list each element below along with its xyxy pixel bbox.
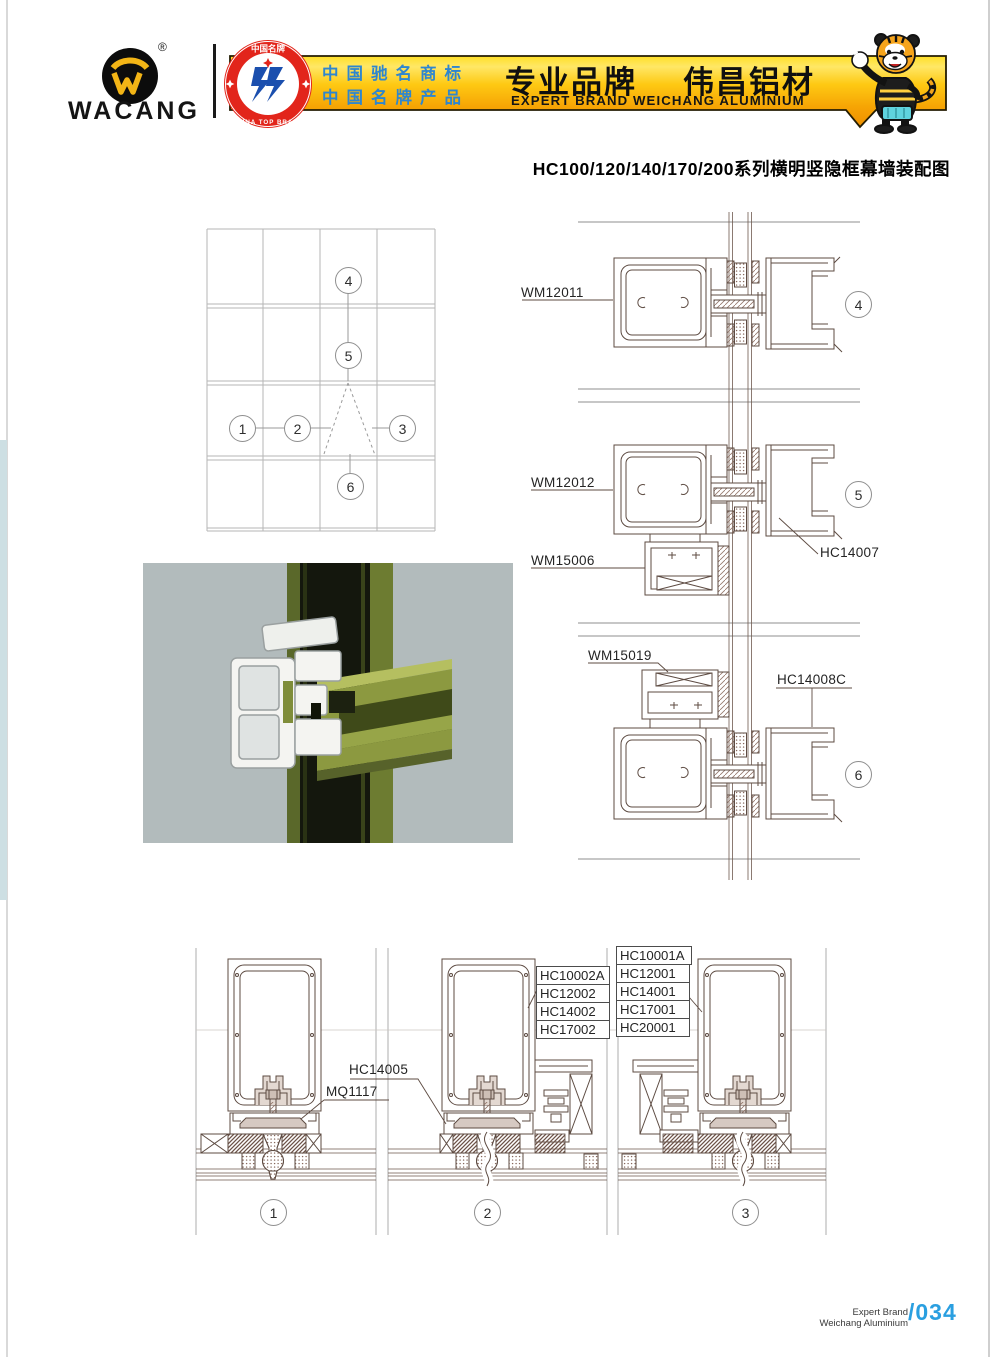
banner-honor-line1: 中国驰名商标 (322, 60, 469, 84)
banner-slogan-en: EXPERT BRAND WEICHANG ALUMINIUM (511, 93, 805, 108)
part-label-hc14002: HC14002 (536, 1002, 610, 1021)
part-label-hc12002: HC12002 (536, 984, 610, 1003)
footer-line1: Expert Brand (819, 1307, 908, 1318)
logo-wordmark: WACANG (58, 97, 210, 126)
detail-section-5 (531, 445, 842, 595)
part-label-mq1117: MQ1117 (326, 1084, 378, 1099)
part-label-hc17001: HC17001 (616, 1000, 690, 1019)
elevation-marker-4: 4 (335, 267, 362, 294)
section-marker-2: 2 (474, 1199, 501, 1226)
header-divider (213, 44, 216, 118)
part-label-stack-detail-3: HC10001A HC12001 HC14001 HC17001 HC20001 (616, 947, 692, 1037)
elevation-grid-drawing (200, 222, 445, 537)
footer-line2: Weichang Aluminium (819, 1318, 908, 1329)
horizontal-joint-details-drawing (185, 940, 865, 1235)
part-label-hc12001: HC12001 (616, 964, 690, 983)
part-label-hc14008c: HC14008C (777, 672, 846, 687)
catalog-page: 中国驰名商标 中国名牌产品 专业品牌伟昌铝材 EXPERT BRAND WEIC… (0, 0, 1000, 1357)
detail-section-4 (522, 257, 842, 352)
page-title: HC100/120/140/170/200系列横明竖隐框幕墙装配图 (533, 156, 950, 181)
section-marker-5: 5 (845, 481, 872, 508)
page-number: /034 (908, 1299, 957, 1326)
registered-mark: ® (158, 40, 167, 54)
part-label-hc14001: HC14001 (616, 982, 690, 1001)
section-marker-1: 1 (260, 1199, 287, 1226)
footer-brand-text: Expert Brand Weichang Aluminium (819, 1307, 908, 1329)
vertical-joint-details-drawing (500, 205, 970, 895)
badge-top-text: 中国名牌 (251, 44, 286, 54)
tiger-mascot-icon (836, 28, 941, 134)
elevation-marker-5: 5 (335, 342, 362, 369)
badge-bottom-text: CHINA TOP BRAND (232, 119, 305, 126)
page-edge-right (988, 0, 990, 1357)
part-label-wm12012: WM12012 (531, 475, 595, 490)
part-label-hc14005: HC14005 (349, 1062, 408, 1077)
banner-honor-line2: 中国名牌产品 (322, 84, 469, 108)
header: 中国驰名商标 中国名牌产品 专业品牌伟昌铝材 EXPERT BRAND WEIC… (0, 0, 1000, 150)
part-label-wm12011: WM12011 (521, 285, 584, 300)
part-label-hc10002a: HC10002A (536, 966, 610, 985)
part-label-hc20001: HC20001 (616, 1018, 690, 1037)
part-label-hc17002: HC17002 (536, 1020, 610, 1039)
china-top-brand-badge-icon: 中国名牌 CHINA TOP BRAND (222, 38, 314, 130)
section-marker-6: 6 (845, 761, 872, 788)
elevation-marker-2: 2 (284, 415, 311, 442)
part-label-hc10001a: HC10001A (616, 946, 692, 965)
part-label-wm15006: WM15006 (531, 553, 595, 568)
profile-render-photo (143, 563, 513, 843)
elevation-marker-3: 3 (389, 415, 416, 442)
part-label-stack-detail-2: HC10002A HC12002 HC14002 HC17002 (536, 967, 610, 1039)
elevation-marker-1: 1 (229, 415, 256, 442)
part-label-wm15019: WM15019 (588, 648, 652, 663)
elevation-marker-6: 6 (337, 473, 364, 500)
part-label-hc14007: HC14007 (820, 545, 879, 560)
scan-artifact (0, 440, 7, 900)
section-marker-3: 3 (732, 1199, 759, 1226)
section-marker-4: 4 (845, 291, 872, 318)
